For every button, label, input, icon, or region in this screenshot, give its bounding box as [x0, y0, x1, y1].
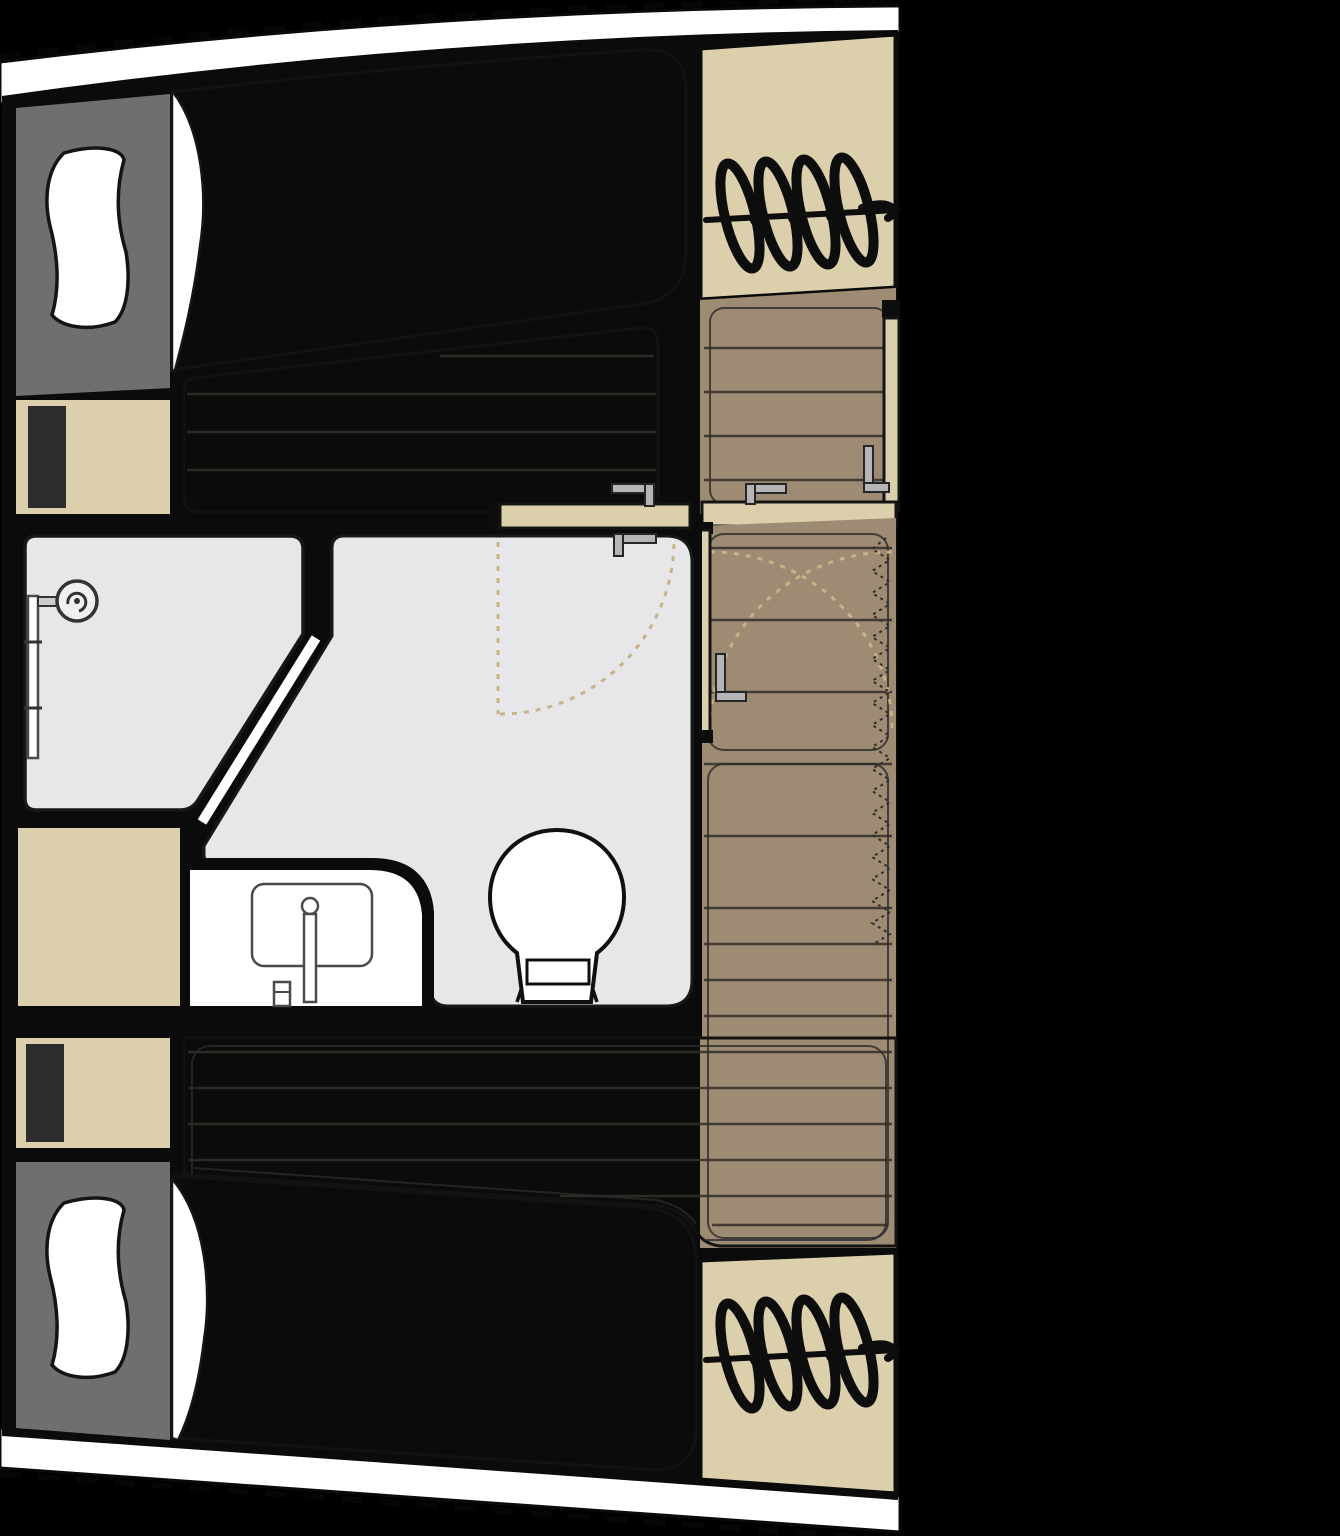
shower-head-center	[74, 598, 80, 604]
steps-forward	[700, 34, 898, 300]
shower-rail	[28, 596, 38, 758]
soap-dispenser-icon	[274, 982, 290, 1006]
steps-aft	[700, 1252, 898, 1494]
cabinet	[16, 826, 182, 1008]
wardrobe-door-panel	[26, 1044, 64, 1142]
floor-plan-canvas	[0, 0, 1340, 1536]
wardrobe-door-panel	[28, 406, 66, 508]
bathroom	[10, 484, 702, 1038]
door-leaf-open-right-wall	[884, 318, 899, 510]
pillow-icon	[47, 148, 128, 327]
pillow-icon	[47, 1198, 128, 1377]
faucet-icon	[302, 898, 318, 914]
toilet-tank	[527, 960, 589, 984]
faucet-stem	[304, 914, 316, 1002]
floor-plan-page	[0, 0, 1340, 1536]
vanity-counter	[182, 858, 428, 1010]
door-jamb	[882, 300, 901, 318]
passageway-floor	[700, 518, 896, 1248]
steps-landing	[700, 288, 901, 518]
right-void	[900, 0, 1340, 1536]
door-leaf-bathroom	[500, 504, 690, 528]
